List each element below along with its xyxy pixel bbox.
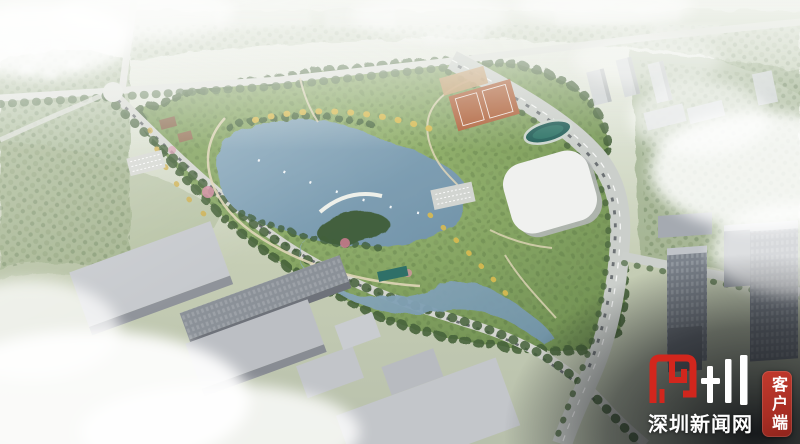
shenzhen-news-logo-icon (648, 353, 752, 405)
screenshot-aerial-rendering: 深圳新闻网 客户端 (0, 0, 800, 444)
site-name: 深圳新闻网 (648, 408, 753, 437)
logo-zhen-char (701, 355, 748, 405)
client-badge: 客户端 (762, 371, 792, 437)
watermark-shenzhen-news: 深圳新闻网 客户端 (648, 353, 792, 437)
